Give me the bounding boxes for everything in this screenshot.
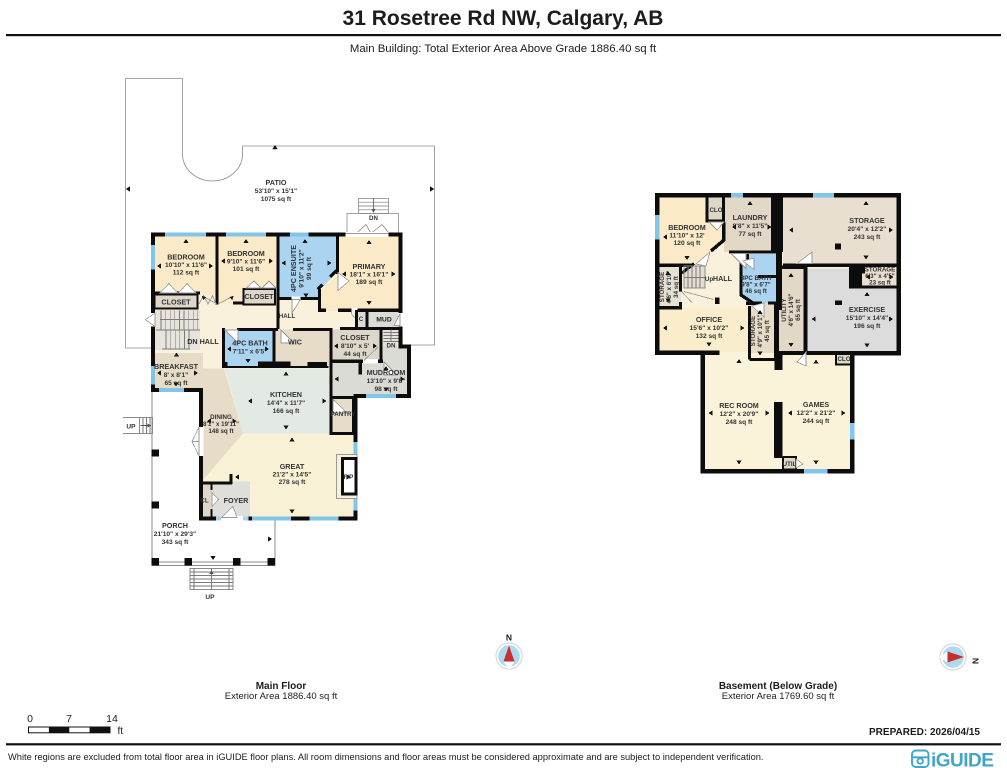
svg-text:STORAGE: STORAGE	[659, 272, 666, 302]
svg-text:BEDROOM: BEDROOM	[227, 249, 265, 258]
svg-text:HALL: HALL	[279, 313, 296, 320]
svg-text:UP: UP	[205, 594, 215, 601]
svg-text:8'8" x 11'5": 8'8" x 11'5"	[733, 223, 768, 230]
svg-text:21'2" x 14'5": 21'2" x 14'5"	[273, 472, 312, 479]
svg-text:120 sq ft: 120 sq ft	[674, 240, 702, 247]
svg-text:BEDROOM: BEDROOM	[167, 253, 205, 262]
svg-text:65 sq ft: 65 sq ft	[795, 299, 802, 321]
svg-text:45 sq ft: 45 sq ft	[764, 320, 771, 342]
svg-text:C: C	[359, 316, 364, 323]
svg-text:7'11" x 6'5": 7'11" x 6'5"	[233, 349, 268, 356]
svg-text:31 Rosetree Rd NW, Calgary, AB: 31 Rosetree Rd NW, Calgary, AB	[343, 7, 664, 30]
svg-text:248 sq ft: 248 sq ft	[726, 419, 754, 426]
svg-text:77 sq ft: 77 sq ft	[738, 231, 762, 238]
svg-text:N: N	[971, 658, 981, 664]
svg-text:ft: ft	[118, 726, 124, 737]
svg-text:N: N	[506, 633, 512, 643]
svg-text:Main Building: Total Exterior: Main Building: Total Exterior Area Above…	[350, 43, 657, 55]
svg-text:243 sq ft: 243 sq ft	[854, 234, 882, 241]
svg-text:CLOSET: CLOSET	[340, 333, 370, 342]
svg-text:4PC BATH: 4PC BATH	[232, 339, 267, 348]
svg-text:12'2" x 21'2": 12'2" x 21'2"	[797, 410, 836, 417]
svg-text:14'4" x 11'7": 14'4" x 11'7"	[267, 400, 305, 407]
svg-text:UTIL: UTIL	[783, 461, 797, 468]
svg-text:BREAKFAST: BREAKFAST	[154, 362, 199, 371]
svg-text:34 sq ft: 34 sq ft	[673, 276, 680, 298]
svg-text:44 sq ft: 44 sq ft	[343, 351, 367, 358]
svg-text:UP: UP	[126, 424, 136, 431]
svg-text:278 sq ft: 278 sq ft	[279, 479, 307, 486]
svg-text:166 sq ft: 166 sq ft	[273, 408, 301, 415]
svg-text:12'2" x 20'9": 12'2" x 20'9"	[720, 411, 759, 418]
svg-text:White regions are excluded fro: White regions are excluded from total fl…	[8, 752, 764, 762]
svg-text:CLOSET: CLOSET	[161, 298, 191, 307]
svg-text:CLOSET: CLOSET	[244, 292, 274, 301]
svg-text:CLO: CLO	[709, 207, 722, 214]
svg-text:GAMES: GAMES	[803, 400, 830, 409]
svg-text:BEDROOM: BEDROOM	[668, 223, 706, 232]
svg-text:CL: CL	[200, 498, 208, 505]
svg-text:GREAT: GREAT	[280, 462, 305, 471]
svg-text:4'6" x 14'6": 4'6" x 14'6"	[788, 293, 795, 326]
svg-text:15'10" x 14'4": 15'10" x 14'4"	[846, 315, 888, 322]
svg-text:WIC: WIC	[288, 338, 302, 347]
svg-text:REC ROOM: REC ROOM	[719, 401, 759, 410]
svg-text:LAUNDRY: LAUNDRY	[733, 213, 768, 222]
svg-text:148 sq ft: 148 sq ft	[208, 428, 233, 435]
svg-text:15'6" x 10'2": 15'6" x 10'2"	[690, 325, 729, 332]
svg-text:189 sq ft: 189 sq ft	[356, 279, 384, 286]
svg-text:99 sq ft: 99 sq ft	[306, 256, 313, 280]
svg-text:DINING: DINING	[210, 414, 232, 421]
svg-text:4PC ENSUITE: 4PC ENSUITE	[289, 245, 298, 292]
svg-text:23 sq ft: 23 sq ft	[869, 280, 891, 287]
svg-text:FOYER: FOYER	[224, 496, 250, 505]
svg-text:STORAGE: STORAGE	[849, 216, 885, 225]
svg-text:KITCHEN: KITCHEN	[270, 390, 302, 399]
svg-text:8'10" x 5': 8'10" x 5'	[341, 343, 370, 350]
svg-text:101 sq ft: 101 sq ft	[233, 266, 261, 273]
svg-text:DN: DN	[387, 343, 396, 350]
svg-text:7: 7	[66, 713, 72, 725]
svg-text:196 sq ft: 196 sq ft	[854, 323, 882, 330]
svg-text:CLO: CLO	[837, 356, 850, 363]
svg-text:1075 sq ft: 1075 sq ft	[261, 196, 292, 203]
svg-text:11'10" x 12': 11'10" x 12'	[669, 233, 705, 240]
svg-text:53'10" x 15'1": 53'10" x 15'1"	[255, 188, 297, 195]
svg-text:HALL: HALL	[713, 274, 733, 283]
svg-text:10'10" x 11'6": 10'10" x 11'6"	[165, 262, 207, 269]
svg-text:PORCH: PORCH	[162, 521, 188, 530]
svg-text:4'6" x 6'10": 4'6" x 6'10"	[666, 270, 673, 303]
svg-text:343 sq ft: 343 sq ft	[162, 539, 190, 546]
svg-text:14: 14	[106, 713, 118, 725]
svg-text:244 sq ft: 244 sq ft	[803, 418, 831, 425]
svg-text:EXERCISE: EXERCISE	[849, 305, 886, 314]
svg-text:STORAGE: STORAGE	[750, 316, 757, 346]
svg-text:20'4" x 12'2": 20'4" x 12'2"	[848, 226, 887, 233]
svg-text:F/P: F/P	[344, 474, 354, 481]
svg-text:9'10" x 11'2": 9'10" x 11'2"	[299, 249, 306, 287]
svg-text:iGUIDE: iGUIDE	[931, 751, 993, 768]
svg-text:UTILITY: UTILITY	[781, 297, 788, 321]
svg-text:132 sq ft: 132 sq ft	[696, 333, 724, 340]
svg-text:18'1" x 16'1": 18'1" x 16'1"	[350, 272, 389, 279]
svg-text:OFFICE: OFFICE	[696, 315, 723, 324]
svg-text:46 sq ft: 46 sq ft	[745, 288, 767, 295]
svg-text:MUD: MUD	[376, 317, 392, 324]
svg-text:DN HALL: DN HALL	[187, 337, 219, 346]
svg-text:DN: DN	[369, 215, 378, 222]
svg-text:112 sq ft: 112 sq ft	[173, 270, 200, 277]
svg-text:PATIO: PATIO	[266, 178, 287, 187]
svg-text:21'10" x 29'3": 21'10" x 29'3"	[154, 531, 196, 538]
svg-text:8' x 8'1": 8' x 8'1"	[164, 372, 189, 379]
svg-text:Exterior Area 1886.40 sq ft: Exterior Area 1886.40 sq ft	[225, 691, 338, 702]
svg-text:PREPARED: 2026/04/15: PREPARED: 2026/04/15	[869, 727, 980, 738]
svg-text:PRIMARY: PRIMARY	[353, 262, 386, 271]
svg-text:0: 0	[27, 713, 33, 725]
svg-text:Exterior Area 1769.60 sq ft: Exterior Area 1769.60 sq ft	[722, 691, 835, 702]
svg-text:4'9" x 10'1": 4'9" x 10'1"	[757, 314, 764, 347]
svg-text:PANTRY: PANTRY	[331, 411, 357, 418]
svg-text:9'10" x 11'6": 9'10" x 11'6"	[227, 259, 265, 266]
svg-text:13'10" x 9'8": 13'10" x 9'8"	[367, 378, 406, 385]
